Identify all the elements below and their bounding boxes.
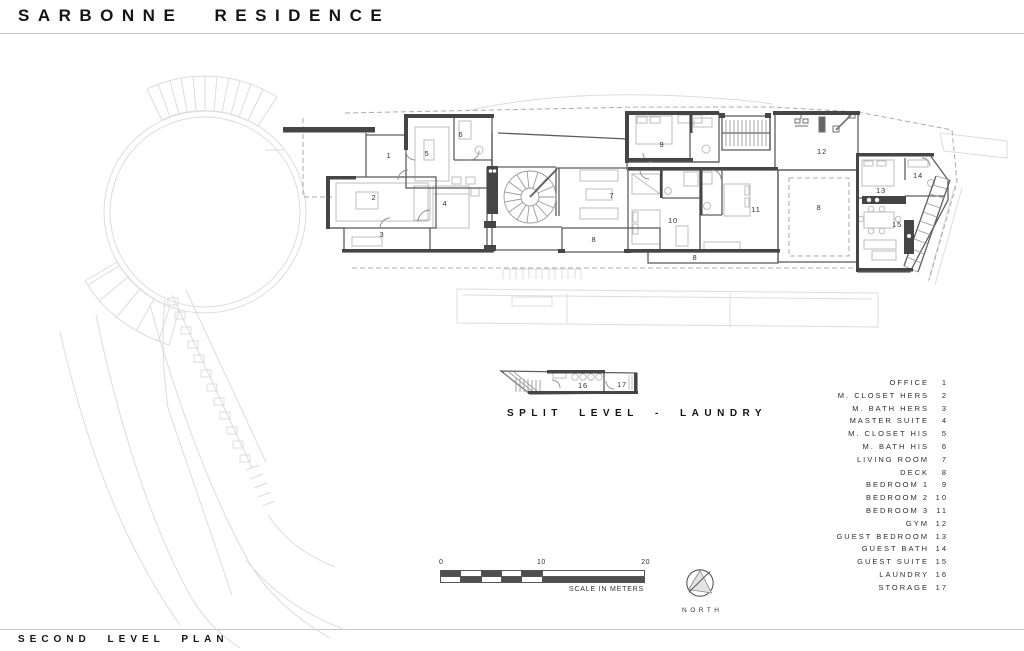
room-number-label: 8 [817, 203, 822, 212]
room-number-label: 15 [892, 220, 902, 229]
room-number-label: 7 [610, 191, 615, 200]
room-number-label: 14 [913, 171, 923, 180]
room-number-label: 5 [425, 149, 430, 158]
door-arcs [380, 151, 930, 389]
site-plan-lines [60, 76, 1007, 648]
room-number-label: 2 [372, 193, 377, 202]
room-number-label: 4 [443, 199, 448, 208]
room-number-label: 17 [617, 380, 627, 389]
room-number-label: 6 [459, 130, 464, 139]
room-number-label: 8 [592, 235, 597, 244]
room-number-label: 1 [387, 151, 392, 160]
floor-plan-drawing: 123456788891011121314151617 [0, 0, 1024, 651]
room-number-label: 9 [660, 140, 665, 149]
room-number-label: 3 [380, 230, 385, 239]
room-number-label: 11 [751, 205, 760, 214]
room-number-label: 12 [817, 147, 827, 156]
room-number-label: 16 [578, 381, 588, 390]
room-number-label: 8 [693, 253, 698, 262]
room-number-label: 10 [668, 216, 678, 225]
room-number-label: 13 [876, 186, 886, 195]
spiral-stair-rail [530, 169, 557, 197]
